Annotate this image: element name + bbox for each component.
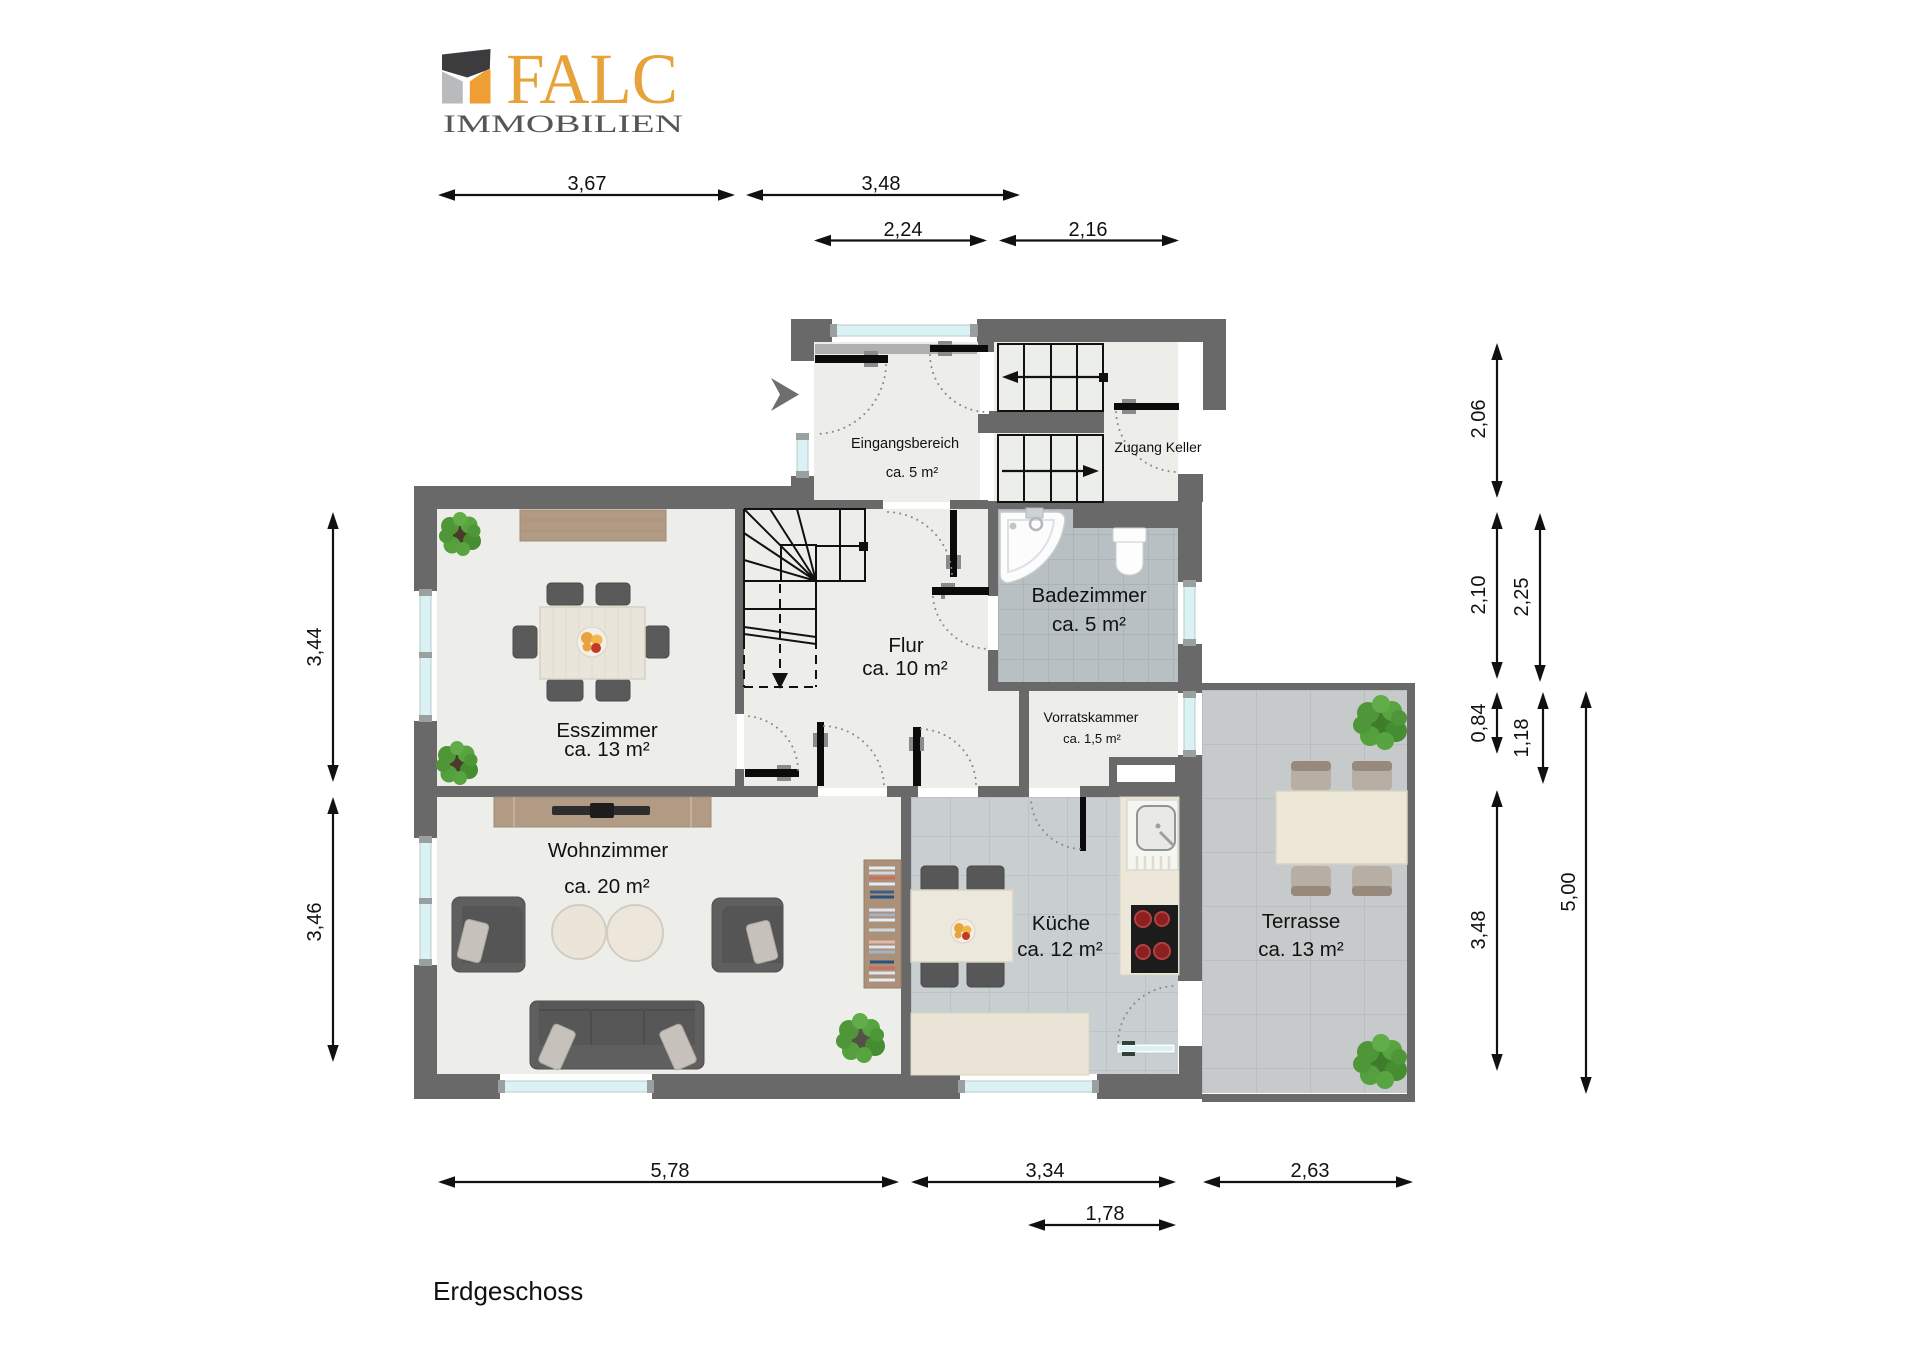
svg-text:Zugang Keller: Zugang Keller (1114, 439, 1202, 455)
svg-text:1,78: 1,78 (1086, 1203, 1125, 1225)
svg-text:Küche: Küche (1032, 912, 1090, 935)
svg-text:ca. 12 m²: ca. 12 m² (1017, 938, 1103, 961)
svg-text:2,24: 2,24 (884, 219, 923, 241)
svg-text:ca. 5 m²: ca. 5 m² (886, 465, 939, 481)
svg-text:IMMOBILIEN: IMMOBILIEN (443, 111, 683, 138)
svg-text:3,67: 3,67 (568, 173, 607, 195)
svg-text:1,18: 1,18 (1511, 719, 1533, 758)
svg-text:Erdgeschoss: Erdgeschoss (433, 1276, 583, 1306)
svg-text:Terrasse: Terrasse (1262, 910, 1341, 933)
svg-text:3,44: 3,44 (304, 628, 326, 667)
svg-text:ca. 20 m²: ca. 20 m² (564, 875, 650, 898)
svg-text:3,48: 3,48 (1468, 911, 1490, 950)
svg-text:3,46: 3,46 (304, 903, 326, 942)
svg-text:5,78: 5,78 (651, 1160, 690, 1182)
svg-text:3,34: 3,34 (1026, 1160, 1065, 1182)
svg-text:3,48: 3,48 (862, 173, 901, 195)
svg-text:5,00: 5,00 (1558, 873, 1580, 912)
svg-text:Badezimmer: Badezimmer (1031, 584, 1146, 607)
svg-text:ca. 13 m²: ca. 13 m² (1258, 938, 1344, 961)
svg-text:Wohnzimmer: Wohnzimmer (548, 839, 669, 862)
svg-text:Eingangsbereich: Eingangsbereich (851, 436, 959, 452)
svg-text:ca. 13 m²: ca. 13 m² (564, 738, 650, 761)
svg-text:Flur: Flur (888, 634, 923, 657)
svg-text:2,25: 2,25 (1511, 578, 1533, 617)
svg-text:ca. 5 m²: ca. 5 m² (1052, 613, 1126, 636)
svg-text:ca. 10 m²: ca. 10 m² (862, 657, 948, 680)
svg-text:Vorratskammer: Vorratskammer (1044, 709, 1139, 725)
svg-text:2,10: 2,10 (1468, 576, 1490, 615)
svg-text:0,84: 0,84 (1468, 704, 1490, 743)
svg-text:2,16: 2,16 (1069, 219, 1108, 241)
svg-text:2,06: 2,06 (1468, 400, 1490, 439)
svg-text:2,63: 2,63 (1291, 1160, 1330, 1182)
svg-text:ca. 1,5 m²: ca. 1,5 m² (1063, 731, 1121, 746)
svg-text:FALC: FALC (506, 39, 678, 119)
